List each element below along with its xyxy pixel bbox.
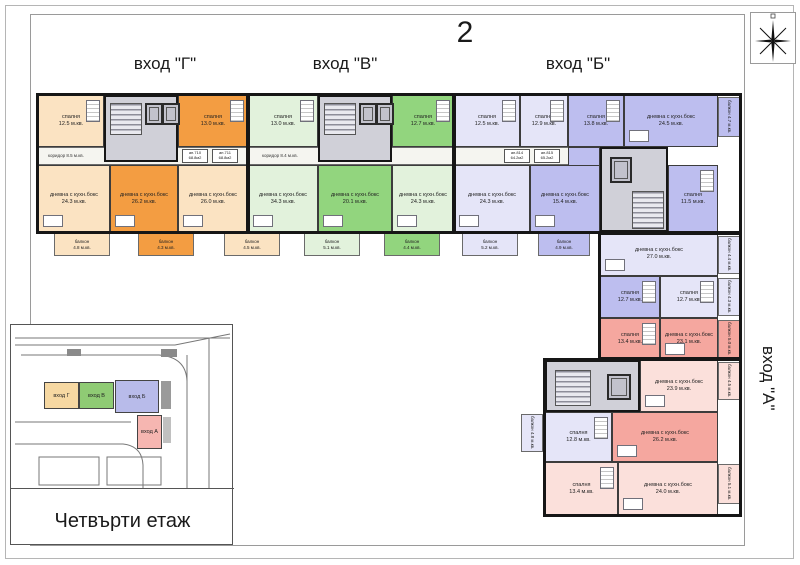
room-living: дневна с кухн.бокс 34.3 м.кв. [248, 165, 318, 232]
room-label: спалня 11.5 м.кв. [681, 192, 705, 206]
section-wall-v-b [452, 93, 456, 234]
room-label: балкон 4.8 м.кв. [73, 239, 90, 250]
apartment-tag: ап.815 65.2м2 [534, 149, 560, 163]
room-bedroom: спалня 12.7 м.кв. [600, 276, 660, 318]
room-living: дневна с кухн.бокс 27.0 м.кв. [600, 232, 718, 276]
entrance-label-g: вход "Г" [100, 54, 230, 76]
room-bedroom: спалня 12.5 м.кв. [38, 95, 104, 147]
staircase [555, 370, 591, 406]
room-living: дневна с кухн.бокс 26.2 м.кв. [612, 412, 718, 462]
room-living: дневна с кухн.бокс 15.4 м.кв. [530, 165, 600, 232]
room-balcony: балкон 4.9 м.кв. [538, 233, 590, 256]
inset-block-v: вход В [79, 382, 114, 409]
room-label: дневна с кухн.бокс 24.5 м.кв. [647, 114, 695, 128]
room-label: дневна с кухн.бокс 24.3 м.кв. [399, 192, 447, 206]
inset-block-a: вход А [137, 415, 162, 449]
compass-rose-icon [751, 13, 795, 63]
room-bedroom: спалня 12.8 м.кв. [545, 412, 612, 462]
room-label: балкон 4.5 м.кв. [726, 364, 732, 397]
section-wall-g-v [246, 93, 250, 234]
stair-core-a [545, 360, 640, 412]
room-living: дневна с кухн.бокс 24.3 м.кв. [454, 165, 530, 232]
room-label: балкон 4.4 м.кв. [726, 238, 732, 271]
room-bedroom: спалня 12.9 м.кв. [520, 95, 568, 147]
room-label: балкон 4.5 м.кв. [243, 239, 260, 250]
floor-plan-page: { "page": { "sheet_number": "2", "floor_… [0, 0, 800, 565]
room-living: дневна с кухн.бокс 24.3 м.кв. [392, 165, 454, 232]
room-bedroom: спалня 13.8 м.кв. [568, 95, 624, 147]
room-living: дневна с кухн.бокс 24.0 м.кв. [618, 462, 718, 515]
inset-block-b: вход Б [115, 380, 159, 413]
room-label: балкон 4.7 м.кв. [726, 100, 732, 133]
apartment-tag: ап.710 68.8м2 [182, 149, 208, 163]
room-balcony: балкон 4.5 м.кв. [718, 362, 740, 400]
sheet-number: 2 [430, 16, 500, 52]
elevator [162, 103, 180, 125]
entrance-label-b: вход "Б" [513, 54, 643, 76]
elevator [359, 103, 377, 125]
room-label: дневна с кухн.бокс 23.9 м.кв. [655, 379, 703, 393]
room-label: дневна с кухн.бокс 24.3 м.кв. [50, 192, 98, 206]
corridor-label-v: коридор 8.4 м.кв. [262, 153, 298, 158]
room-bedroom: спалня 11.5 м.кв. [668, 165, 718, 232]
room-balcony: балкон 5.1 м.кв. [718, 464, 740, 504]
site-map-inset: вход Г вход В вход Б вход А Четвърти ета… [10, 324, 233, 545]
room-balcony: балкон 5.0 м.кв. [718, 320, 740, 358]
room-label: балкон 4.8 м.кв. [529, 416, 535, 449]
room-label: балкон 5.1 м.кв. [323, 239, 340, 250]
room-label: дневна с кухн.бокс 26.0 м.кв. [189, 192, 237, 206]
elevator [145, 103, 163, 125]
room-living: дневна с кухн.бокс 20.1 м.кв. [318, 165, 392, 232]
staircase [324, 103, 356, 135]
room-living: дневна с кухн.бокс 23.9 м.кв. [640, 360, 718, 412]
room-label: балкон 4.4 м.кв. [403, 239, 420, 250]
room-label: балкон 5.1 м.кв. [726, 467, 732, 500]
staircase [110, 103, 142, 135]
room-bedroom: спалня 13.4 м.кв. [545, 462, 618, 515]
room-living: дневна с кухн.бокс 24.3 м.кв. [38, 165, 110, 232]
room-bedroom: спалня 12.7 м.кв. [660, 276, 718, 318]
entrance-label-v: вход "В" [280, 54, 410, 76]
room-label: дневна с кухн.бокс 20.1 м.кв. [331, 192, 379, 206]
room-bedroom: спалня 13.0 м.кв. [178, 95, 248, 147]
room-balcony: балкон 5.1 м.кв. [304, 233, 360, 256]
room-living: дневна с кухн.бокс 24.5 м.кв. [624, 95, 718, 147]
room-label: спалня 12.7 м.кв. [618, 290, 642, 304]
room-living: дневна с кухн.бокс 26.2 м.кв. [110, 165, 178, 232]
room-label: спалня 13.8 м.кв. [584, 114, 608, 128]
room-label: спалня 13.4 м.кв. [569, 482, 593, 496]
inset-block-label: вход Г [53, 393, 69, 399]
room-balcony: балкон 4.4 м.кв. [718, 236, 740, 274]
room-label: спалня 12.8 м.кв. [566, 430, 590, 444]
room-living: дневна с кухн.бокс 23.1 м.кв. [660, 318, 718, 360]
inset-block-label: вход Б [129, 394, 146, 400]
room-label: балкон 5.2 м.кв. [481, 239, 498, 250]
stair-core-g [104, 95, 178, 162]
room-balcony: балкон 4.8 м.кв. [54, 233, 110, 256]
room-label: балкон 4.3 м.кв. [726, 280, 732, 313]
room-bedroom: спалня 12.5 м.кв. [454, 95, 520, 147]
room-balcony: балкон 4.3 м.кв. [138, 233, 194, 256]
stair-core-v [318, 95, 392, 162]
room-bedroom: спалня 13.0 м.кв. [248, 95, 318, 147]
room-label: спалня 12.7 м.кв. [677, 290, 701, 304]
floor-caption: Четвърти етаж [11, 503, 234, 539]
room-bedroom: спалня 12.7 м.кв. [392, 95, 454, 147]
room-label: балкон 5.0 м.кв. [726, 322, 732, 355]
room-label: дневна с кухн.бокс 24.3 м.кв. [468, 192, 516, 206]
room-label: дневна с кухн.бокс 24.0 м.кв. [644, 482, 692, 496]
room-label: спалня 12.5 м.кв. [475, 114, 499, 128]
inset-block-label: вход В [88, 393, 105, 399]
room-balcony: балкон 4.5 м.кв. [224, 233, 280, 256]
compass-box [750, 12, 796, 64]
room-balcony: балкон 4.7 м.кв. [718, 97, 740, 137]
inset-block-g: вход Г [44, 382, 79, 409]
room-balcony: балкон 5.2 м.кв. [462, 233, 518, 256]
room-label: балкон 4.9 м.кв. [555, 239, 572, 250]
stair-core-b [600, 147, 668, 232]
room-balcony: балкон 4.8 м.кв. [521, 414, 543, 452]
elevator [610, 157, 632, 183]
inset-divider [11, 488, 234, 489]
room-label: дневна с кухн.бокс 34.3 м.кв. [259, 192, 307, 206]
entrance-label-a: вход "А" [752, 318, 778, 438]
room-label: спалня 12.7 м.кв. [411, 114, 435, 128]
room-label: дневна с кухн.бокс 26.2 м.кв. [641, 430, 689, 444]
room-label: дневна с кухн.бокс 27.0 м.кв. [635, 247, 683, 261]
room-label: дневна с кухн.бокс 23.1 м.кв. [665, 332, 713, 346]
apartment-tag: ап.711 68.8м2 [212, 149, 238, 163]
room-balcony: балкон 4.3 м.кв. [718, 278, 740, 316]
room-label: спалня 13.4 м.кв. [618, 332, 642, 346]
room-label: спалня 12.9 м.кв. [532, 114, 556, 128]
room-label: балкон 4.3 м.кв. [157, 239, 174, 250]
elevator [376, 103, 394, 125]
inset-block-label: вход А [141, 429, 158, 435]
apartment-tag: ап.814 64.2м2 [504, 149, 530, 163]
room-label: дневна с кухн.бокс 15.4 м.кв. [541, 192, 589, 206]
room-label: спалня 13.0 м.кв. [201, 114, 225, 128]
room-label: спалня 13.0 м.кв. [271, 114, 295, 128]
room-label: дневна с кухн.бокс 26.2 м.кв. [120, 192, 168, 206]
room-balcony: балкон 4.4 м.кв. [384, 233, 440, 256]
staircase [632, 191, 664, 229]
corridor-label-g: коридор 8.5 м.кв. [48, 153, 84, 158]
room-bedroom: спалня 13.4 м.кв. [600, 318, 660, 360]
room-label: спалня 12.5 м.кв. [59, 114, 83, 128]
room-living: дневна с кухн.бокс 26.0 м.кв. [178, 165, 248, 232]
elevator [607, 374, 631, 400]
